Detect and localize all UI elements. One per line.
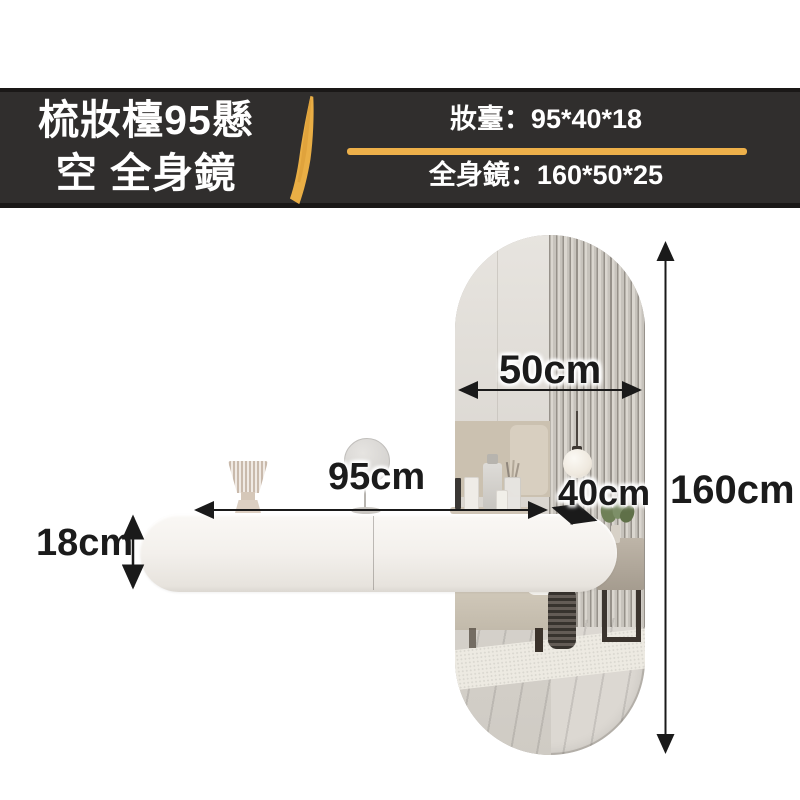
gold-divider: [347, 148, 747, 155]
pendant-lamp-cord: [576, 411, 578, 451]
ribbed-vase-base: [235, 500, 261, 513]
header-banner: 梳妝檯95懸 空 全身鏡 妝臺：95*40*18 全身鏡：160*50*25: [0, 88, 800, 208]
product-title-line-1: 梳妝檯95懸: [12, 94, 280, 147]
cosmetic-tube: [464, 477, 479, 511]
reflected-nightstand-leg: [636, 590, 641, 642]
reflected-wall-corner: [497, 235, 498, 425]
drawer-seam: [373, 516, 374, 590]
mirror-height-label: 160cm: [670, 468, 795, 513]
table-height-label: 18cm: [36, 522, 133, 565]
ribbed-vase-cup: [227, 461, 269, 493]
mirror-width-label: 50cm: [455, 348, 645, 393]
reflected-bench-leg: [469, 628, 476, 648]
ribbed-vase-waist: [241, 492, 255, 501]
floating-vanity-table: [140, 514, 617, 592]
brush-stroke-icon: [284, 94, 322, 206]
reflected-bench-leg: [535, 628, 543, 652]
product-image: 梳妝檯95懸 空 全身鏡 妝臺：95*40*18 全身鏡：160*50*25: [0, 0, 800, 800]
product-title: 梳妝檯95懸 空 全身鏡: [12, 94, 280, 200]
reflected-nightstand-leg: [602, 590, 607, 642]
reflected-nightstand-bar: [602, 637, 641, 642]
table-width-label: 95cm: [328, 456, 425, 499]
table-depth-label: 40cm: [558, 472, 650, 514]
spec-vanity: 妝臺：95*40*18: [345, 104, 747, 134]
product-title-line-2: 空 全身鏡: [12, 147, 280, 200]
reflected-dark-pouf: [548, 587, 576, 649]
cosmetic-bottle-dark: [455, 478, 461, 509]
cosmetic-jar: [496, 490, 508, 511]
makeup-mirror-base: [351, 507, 381, 514]
cosmetic-bottle-cap: [487, 454, 498, 464]
spec-mirror: 全身鏡：160*50*25: [345, 160, 747, 190]
